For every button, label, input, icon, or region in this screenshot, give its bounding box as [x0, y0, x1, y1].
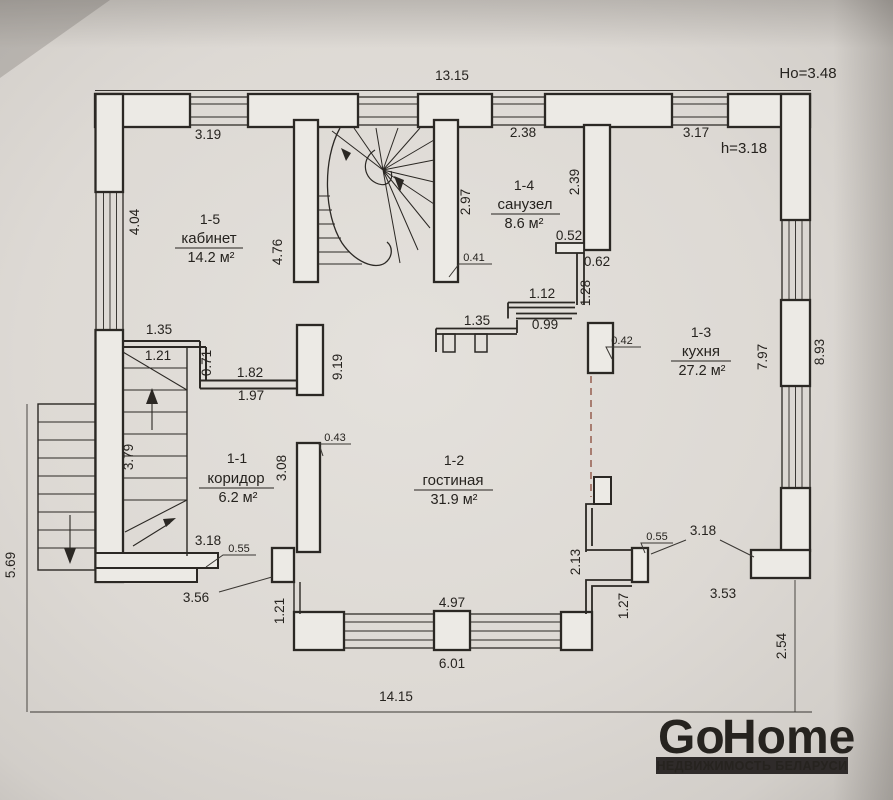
room-kitchen-name: кухня: [682, 343, 720, 360]
room-bathroom-id: 1-4: [514, 177, 534, 193]
dim-cabinet-left: 4.04: [127, 208, 142, 235]
dim-stair-right: 2.97: [458, 189, 473, 215]
paper-shadow-right: [833, 0, 893, 800]
room-bathroom-name: санузел: [498, 196, 553, 213]
dim-entry-top: 1.12: [529, 286, 555, 301]
dim-hall-step: 0.55: [228, 543, 249, 555]
logo-go: Go: [658, 711, 725, 764]
dim-kitchen-pier: 0.42: [611, 335, 632, 347]
dim-right-total: 8.93: [812, 339, 827, 365]
dim-part-inner: 1.21: [145, 348, 171, 363]
dim-top-total: 13.15: [435, 68, 469, 83]
room-height-label: h=3.18: [721, 140, 767, 157]
dim-living-right-jog: 1.27: [616, 593, 631, 619]
floor-height-label: Но=3.48: [779, 65, 836, 82]
dim-chimney: 2.13: [568, 549, 583, 575]
dim-kitchen-top: 3.17: [683, 125, 709, 140]
room-bathroom-area: 8.6 м²: [505, 216, 544, 232]
dim-bath-step-h: 0.62: [584, 254, 610, 269]
gohome-logo: Go Home НЕДВИЖИМОСТЬ БЕЛАРУСИ: [656, 711, 855, 774]
room-living-area: 31.9 м²: [430, 492, 477, 508]
dim-hall-bottom: 3.18: [195, 533, 221, 548]
room-cabinet-id: 1-5: [200, 211, 220, 227]
room-living-id: 1-2: [444, 452, 464, 468]
floor-plan-page: 13.15 Но=3.48 h=3.18 14.15 5.69 8.93 2.5…: [0, 0, 893, 800]
dim-cabinet-top: 3.19: [195, 127, 221, 142]
room-kitchen-id: 1-3: [691, 324, 711, 340]
dim-part-right-b: 1.97: [238, 388, 264, 403]
dim-porch-opening: 3.18: [690, 523, 716, 538]
dim-stairs-run: 3.79: [121, 444, 136, 470]
dim-part-drop: 0.71: [199, 350, 214, 376]
dim-bath-step-w: 0.52: [556, 228, 582, 243]
floor-plan-canvas: 13.15 Но=3.48 h=3.18 14.15 5.69 8.93 2.5…: [0, 0, 893, 800]
dim-kitchen-inner-right: 7.97: [755, 344, 770, 370]
dim-hall-wall-pier: 0.43: [324, 432, 345, 444]
paper-shadow-top: [0, 0, 893, 48]
dim-entry-bottom: 0.99: [532, 317, 558, 332]
dim-hall-outer: 3.56: [183, 590, 209, 605]
dim-bathroom-inner-right: 2.39: [567, 169, 582, 195]
dim-part-top: 1.35: [146, 322, 172, 337]
dim-cabinet-right: 4.76: [270, 239, 285, 265]
dim-bottom-total: 14.15: [379, 689, 413, 704]
room-kitchen-area: 27.2 м²: [678, 363, 725, 379]
room-living-name: гостиная: [423, 472, 484, 489]
room-cabinet-name: кабинет: [181, 230, 236, 247]
dim-hall-wall: 3.08: [274, 455, 289, 481]
dim-part-right-a: 1.82: [237, 365, 263, 380]
dim-porch-step: 0.55: [646, 531, 667, 543]
dim-porch-bottom: 3.53: [710, 586, 736, 601]
logo-tagline: НЕДВИЖИМОСТЬ БЕЛАРУСИ: [657, 759, 848, 773]
room-hallway-id: 1-1: [227, 450, 247, 466]
room-hallway-area: 6.2 м²: [219, 490, 258, 506]
dim-bath-wall: 1.28: [578, 280, 593, 306]
room-hallway-name: коридор: [207, 470, 264, 487]
dim-entry-left: 1.35: [464, 313, 490, 328]
dim-left-total: 5.69: [3, 552, 18, 578]
dim-living-window: 4.97: [439, 595, 465, 610]
dim-hall-pier: 9.19: [330, 354, 345, 380]
dim-living-bottom: 6.01: [439, 656, 465, 671]
logo-home: Home: [722, 711, 855, 764]
dim-bathroom-top: 2.38: [510, 125, 536, 140]
dim-stair-pier: 0.41: [463, 252, 484, 264]
dim-living-left-jog: 1.21: [272, 598, 287, 624]
room-cabinet-area: 14.2 м²: [187, 250, 234, 266]
dim-right-offset: 2.54: [774, 632, 789, 659]
